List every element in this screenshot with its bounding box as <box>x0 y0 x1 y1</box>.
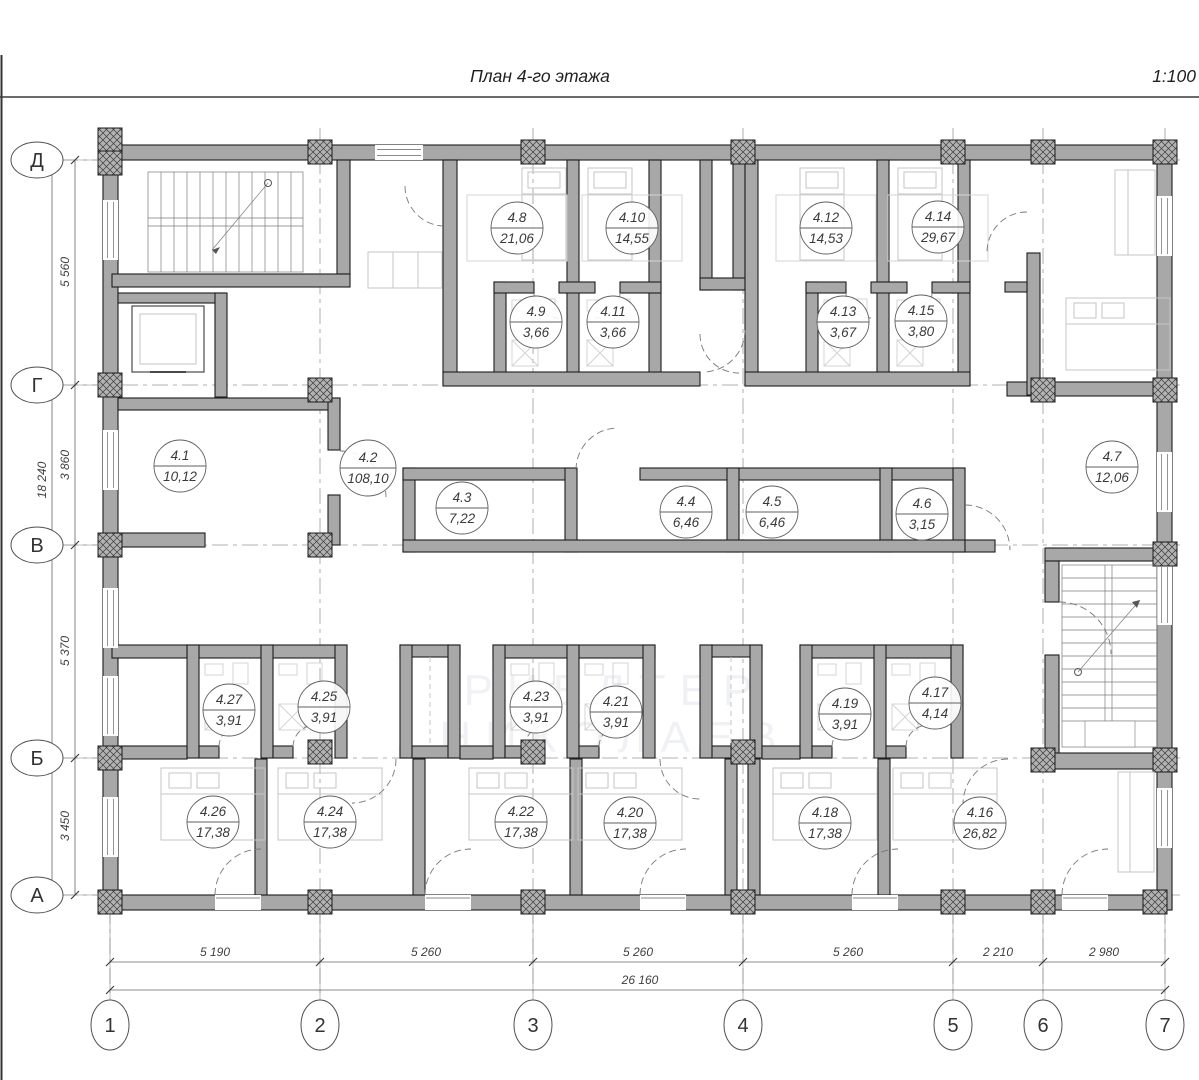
axis-col-2: 2 <box>301 1000 339 1050</box>
svg-text:4.23: 4.23 <box>523 689 550 704</box>
svg-text:6,46: 6,46 <box>759 515 786 530</box>
room-label-4-26: 4.2617,38 <box>187 796 239 848</box>
svg-text:3,91: 3,91 <box>311 710 337 725</box>
svg-text:2: 2 <box>314 1015 325 1037</box>
svg-text:4.5: 4.5 <box>763 494 782 509</box>
stairs-bottom-right <box>1062 565 1157 747</box>
room-label-4-1: 4.110,12 <box>154 440 206 492</box>
axis-row-a: А <box>11 877 63 913</box>
page-title: План 4-го этажа <box>470 66 610 86</box>
svg-text:3,91: 3,91 <box>603 715 629 730</box>
svg-text:3,67: 3,67 <box>830 325 857 340</box>
room-label-4-19: 4.193,91 <box>819 688 871 740</box>
svg-text:4.27: 4.27 <box>216 692 243 707</box>
svg-text:4.8: 4.8 <box>508 210 527 225</box>
bed <box>1066 298 1170 370</box>
svg-text:17,38: 17,38 <box>196 825 230 840</box>
svg-text:3 860: 3 860 <box>58 450 72 480</box>
svg-text:10,12: 10,12 <box>163 469 197 484</box>
room-label-4-21: 4.213,91 <box>590 686 642 738</box>
room-label-4-17: 4.174,14 <box>909 677 961 729</box>
svg-text:4.15: 4.15 <box>908 303 935 318</box>
room-label-4-11: 4.113,66 <box>587 296 639 348</box>
svg-text:4.26: 4.26 <box>200 804 227 819</box>
svg-text:5 260: 5 260 <box>623 945 653 959</box>
axis-row-d: Д <box>11 142 63 178</box>
svg-text:14,53: 14,53 <box>809 231 843 246</box>
svg-text:4.22: 4.22 <box>508 804 535 819</box>
svg-text:14,55: 14,55 <box>615 231 649 246</box>
grid-lines <box>62 128 1180 1000</box>
svg-text:3,91: 3,91 <box>216 713 242 728</box>
room-label-4-7: 4.712,06 <box>1086 441 1138 493</box>
axis-row-b: Б <box>11 740 63 776</box>
sheet-header: План 4-го этажа 1:100 <box>0 55 1199 1080</box>
svg-text:1: 1 <box>104 1015 115 1037</box>
svg-text:4.24: 4.24 <box>317 804 343 819</box>
svg-text:7: 7 <box>1159 1015 1170 1037</box>
room-label-4-24: 4.2417,38 <box>304 796 356 848</box>
svg-text:3 450: 3 450 <box>58 811 72 841</box>
svg-text:4.25: 4.25 <box>311 689 338 704</box>
svg-text:4.16: 4.16 <box>967 805 994 820</box>
svg-text:Д: Д <box>30 150 44 172</box>
svg-text:108,10: 108,10 <box>347 471 389 486</box>
svg-text:4.14: 4.14 <box>925 209 951 224</box>
axis-col-7: 7 <box>1146 1000 1184 1050</box>
svg-text:А: А <box>30 885 44 907</box>
svg-text:3,91: 3,91 <box>832 717 858 732</box>
svg-text:3,15: 3,15 <box>909 517 936 532</box>
room-label-4-16: 4.1626,82 <box>954 797 1006 849</box>
dimensions-bottom: 5 190 5 260 5 260 5 260 2 210 2 980 26 1… <box>106 915 1169 998</box>
svg-text:17,38: 17,38 <box>313 825 347 840</box>
svg-text:4.17: 4.17 <box>922 685 949 700</box>
axis-col-4: 4 <box>724 1000 762 1050</box>
room-label-4-20: 4.2017,38 <box>604 797 656 849</box>
room-label-4-25: 4.253,91 <box>298 681 350 733</box>
svg-text:26,82: 26,82 <box>962 826 997 841</box>
drawing-sheet: План 4-го этажа 1:100 РИЕЛТЕР НИКОЛАЕВ <box>0 0 1199 1080</box>
axis-row-v: В <box>11 527 63 563</box>
room-label-4-4: 4.46,46 <box>660 486 712 538</box>
svg-text:2 980: 2 980 <box>1088 945 1119 959</box>
axis-col-3: 3 <box>514 1000 552 1050</box>
svg-text:5 560: 5 560 <box>58 257 72 287</box>
room-label-4-5: 4.56,46 <box>746 486 798 538</box>
room-label-4-14: 4.1429,67 <box>912 201 964 253</box>
room-label-4-27: 4.273,91 <box>203 684 255 736</box>
room-label-4-2: 4.2108,10 <box>340 440 396 496</box>
svg-text:5 260: 5 260 <box>833 945 863 959</box>
svg-text:26 160: 26 160 <box>621 973 659 987</box>
svg-text:4,14: 4,14 <box>922 706 948 721</box>
svg-text:4.6: 4.6 <box>913 496 932 511</box>
room-label-4-12: 4.1214,53 <box>800 202 852 254</box>
svg-text:4.11: 4.11 <box>600 304 625 319</box>
svg-text:7,22: 7,22 <box>449 511 476 526</box>
svg-text:4.21: 4.21 <box>603 694 629 709</box>
room-label-4-13: 4.133,67 <box>817 296 869 348</box>
elevator <box>132 306 204 372</box>
axis-row-g: Г <box>11 367 63 403</box>
svg-text:4.1: 4.1 <box>171 448 190 463</box>
svg-text:4.2: 4.2 <box>359 450 378 465</box>
axis-col-5: 5 <box>934 1000 972 1050</box>
room-label-4-22: 4.2217,38 <box>495 796 547 848</box>
svg-text:4.13: 4.13 <box>830 304 857 319</box>
svg-text:4.12: 4.12 <box>813 210 840 225</box>
svg-text:29,67: 29,67 <box>920 230 955 245</box>
svg-text:4.7: 4.7 <box>1103 449 1122 464</box>
axis-col-6: 6 <box>1024 1000 1062 1050</box>
svg-text:6,46: 6,46 <box>673 515 700 530</box>
svg-text:Б: Б <box>30 748 43 770</box>
svg-text:4.4: 4.4 <box>677 494 696 509</box>
svg-text:5 190: 5 190 <box>200 945 230 959</box>
svg-text:3,80: 3,80 <box>908 324 935 339</box>
svg-text:4.10: 4.10 <box>619 210 646 225</box>
room-label-4-18: 4.1817,38 <box>799 797 851 849</box>
svg-text:5: 5 <box>947 1015 958 1037</box>
room-label-4-8: 4.821,06 <box>491 202 543 254</box>
room-label-4-15: 4.153,80 <box>895 295 947 347</box>
room-label-4-10: 4.1014,55 <box>606 202 658 254</box>
svg-text:4.19: 4.19 <box>832 696 859 711</box>
svg-text:17,38: 17,38 <box>808 826 842 841</box>
room-label-4-9: 4.93,66 <box>510 296 562 348</box>
svg-text:5 370: 5 370 <box>58 636 72 666</box>
svg-text:4: 4 <box>737 1015 748 1037</box>
svg-text:17,38: 17,38 <box>504 825 538 840</box>
svg-text:4.3: 4.3 <box>453 490 472 505</box>
room-label-4-3: 4.37,22 <box>436 482 488 534</box>
stairs-top-left <box>148 172 303 272</box>
svg-text:3,91: 3,91 <box>523 710 549 725</box>
svg-text:3: 3 <box>527 1015 538 1037</box>
svg-text:17,38: 17,38 <box>613 826 647 841</box>
svg-text:21,06: 21,06 <box>499 231 534 246</box>
svg-text:2 210: 2 210 <box>982 945 1013 959</box>
axis-col-1: 1 <box>91 1000 129 1050</box>
svg-text:Г: Г <box>32 375 43 397</box>
floor-plan-canvas: План 4-го этажа 1:100 РИЕЛТЕР НИКОЛАЕВ <box>0 0 1199 1080</box>
walls <box>103 145 1172 910</box>
svg-text:4.9: 4.9 <box>527 304 546 319</box>
svg-text:3,66: 3,66 <box>523 325 550 340</box>
svg-text:12,06: 12,06 <box>1095 470 1129 485</box>
room-label-4-23: 4.233,91 <box>510 681 562 733</box>
room-label-4-6: 4.63,15 <box>896 488 948 540</box>
svg-text:3,66: 3,66 <box>600 325 627 340</box>
svg-text:4.18: 4.18 <box>812 805 839 820</box>
svg-text:5 260: 5 260 <box>411 945 441 959</box>
svg-text:В: В <box>30 535 43 557</box>
svg-text:6: 6 <box>1037 1015 1048 1037</box>
svg-text:4.20: 4.20 <box>617 805 644 820</box>
svg-text:18 240: 18 240 <box>35 461 49 498</box>
scale-label: 1:100 <box>1152 66 1196 86</box>
